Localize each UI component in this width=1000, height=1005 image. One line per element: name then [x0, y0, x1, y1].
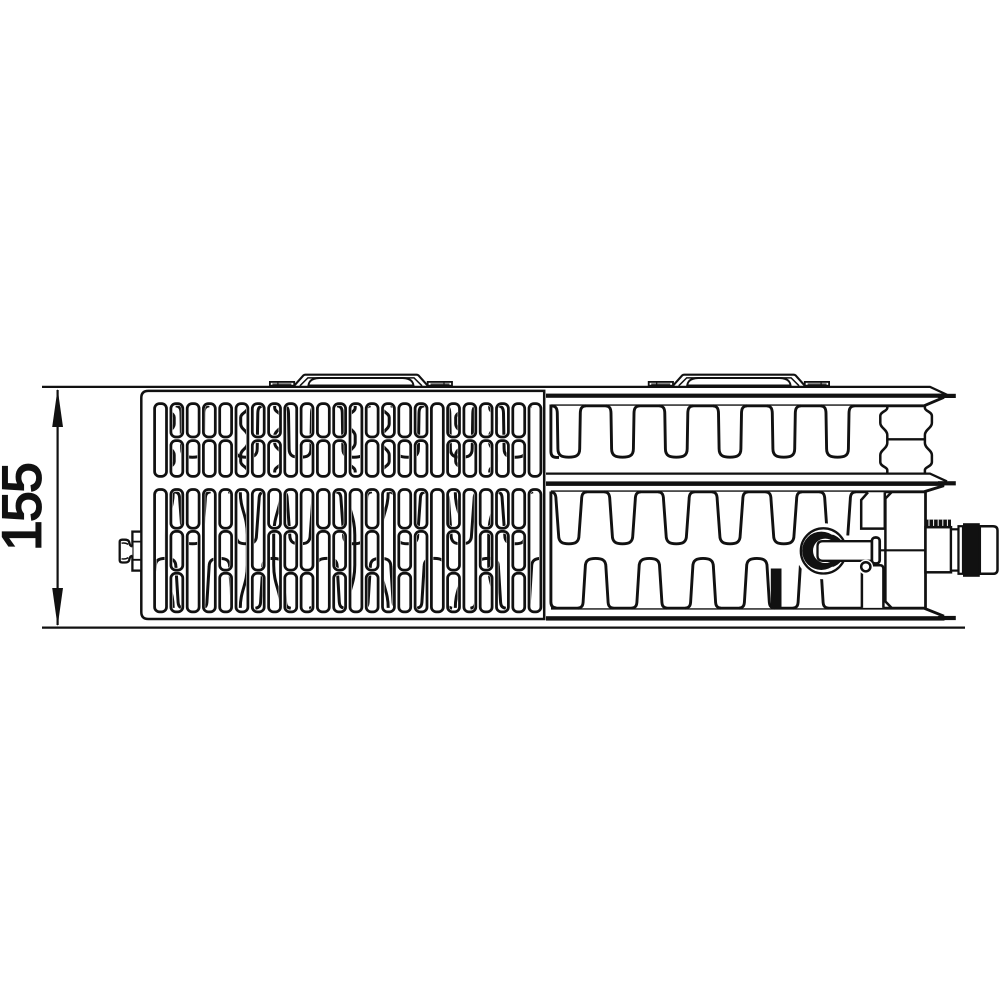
- svg-text:155: 155: [0, 464, 53, 551]
